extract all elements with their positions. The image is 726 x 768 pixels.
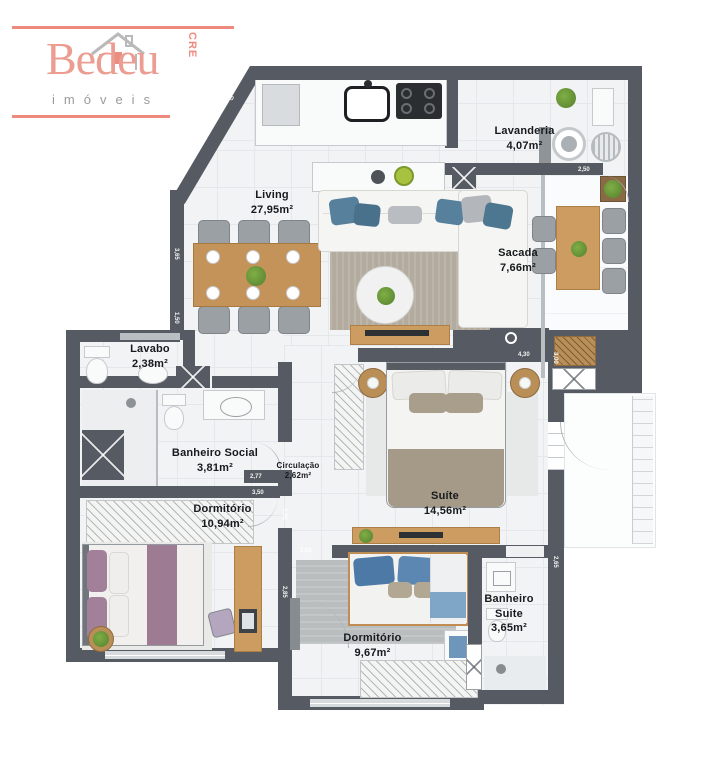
toilet [164,406,184,430]
water-heater [591,132,621,162]
dim-label: 3,55 [281,508,287,520]
room-label-circulacao: Circulação2,62m² [262,461,334,482]
wall-suite-top [358,348,564,362]
room-label-banheiro-suite: Banheiro Suite3,65m² [477,592,541,636]
wall-corridor-left-a [278,362,292,442]
bedroom1-desk [234,546,262,652]
dim-label: 2,65 [552,556,558,568]
floor-plan-page: Bedeu imóveis CRECI 665-J [0,0,726,768]
chair [532,216,556,242]
bath-counter [203,390,265,420]
room-label-suite: Suíte14,56m² [395,489,495,518]
room-label-sacada: Sacada7,66m² [478,246,558,275]
chair [278,306,310,334]
wall-circle-symbol [505,332,517,344]
tv-console [350,325,450,345]
balcony-table [556,206,600,290]
shaft-box-kitchen [452,167,476,189]
laundry-cabinet [592,88,614,126]
dim-label: 3,65 [173,248,179,260]
dim-label: 2,77 [250,474,262,480]
wall-right-lower [548,545,564,704]
shower-floor [484,656,546,690]
dim-label: 4,30 [518,352,530,358]
shaft-box-balcony [552,368,596,390]
brand-subtitle: imóveis [52,92,159,107]
wall-top [250,66,642,80]
fruit-bowl [394,166,414,186]
window-bed2 [310,699,450,707]
chair [238,306,270,334]
room-label-lavabo: Lavabo2,38m² [110,342,190,371]
chair [602,238,626,264]
shower-box [82,430,124,480]
wall-bath-social-top [212,376,278,388]
chair [198,306,230,334]
dim-label: 2,85 [281,586,287,598]
closet-shelves [632,396,653,544]
dim-label: 2,50 [578,167,590,173]
nightstand [510,368,540,398]
dark-bowl [371,170,385,184]
wall-living-bottom-right [453,328,549,350]
side-table [88,626,114,652]
dim-label: 1,00 [300,548,312,554]
suite-dresser [352,527,500,544]
bedroom2-wardrobe [360,660,478,698]
coffee-table [356,266,414,324]
entry-door-leaf [290,598,300,650]
pillow [388,206,422,224]
fridge [262,84,300,126]
toilet [86,358,108,384]
balcony-glass-door [541,175,545,378]
chair [602,208,626,234]
pillow [482,202,514,230]
dining-table [193,243,321,307]
stove [396,83,442,119]
suite-closet-area [564,393,656,548]
pillow [353,203,381,228]
bedroom2-bed [348,552,468,626]
bath-suite-sink [486,562,516,592]
ac-unit-box [554,336,596,366]
nightstand [358,368,388,398]
shower-head [126,398,136,408]
suite-bed [386,362,506,508]
dim-label: 3,00 [552,352,558,364]
dim-label: 1,50 [173,312,179,324]
bath-suite-door-gap [506,546,544,557]
toilet-tank [162,394,186,406]
dim-label: 3,50 [252,490,264,496]
wall-right-outer [628,66,642,392]
laundry-plant [556,88,576,108]
chair [602,268,626,294]
shower-glass-box [466,644,482,690]
room-label-living: Living27,95m² [222,188,322,217]
window-bed1 [105,651,225,659]
room-label-dormitorio2: Dormitório9,67m² [310,631,435,660]
lavabo-shelf [120,333,180,340]
wall-suite-right-b [548,470,564,550]
room-label-dormitorio1: Dormitório10,94m² [160,502,285,531]
brand-name: Bedeu [46,32,159,85]
toilet-tank [84,346,110,358]
room-label-lavanderia: Lavanderia4,07m² [462,124,587,153]
kitchen-sink [344,86,390,122]
kitchen-faucet [364,80,372,88]
